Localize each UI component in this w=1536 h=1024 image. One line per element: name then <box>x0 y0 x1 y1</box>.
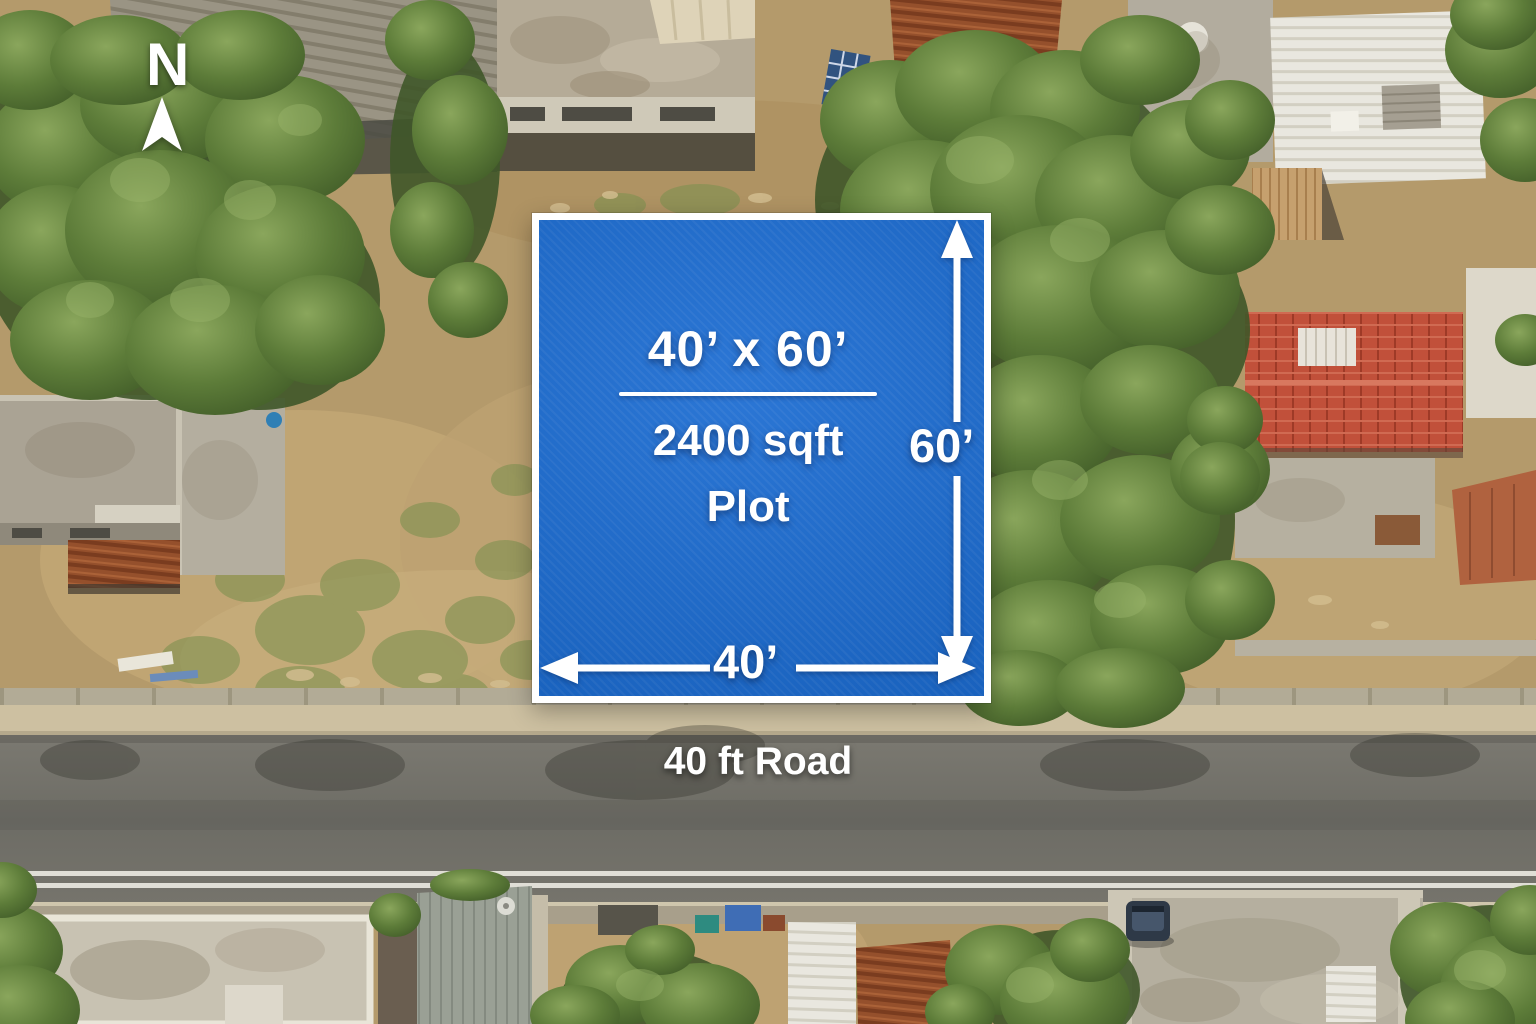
north-arrow-icon <box>142 97 182 151</box>
metal-roof-house <box>417 886 535 1024</box>
aerial-plot-view: N 40’ x 60’ 2400 sqft Plot 60’ 40’ 40 ft… <box>0 0 1536 1024</box>
parked-car <box>1122 901 1174 948</box>
red-tile-roof-house <box>1245 312 1463 458</box>
plot-caption: 40’ x 60’ 2400 sqft Plot <box>619 320 877 532</box>
concrete-roof-building <box>1108 890 1423 1024</box>
road <box>0 688 1536 924</box>
plot-type-label: Plot <box>619 482 877 532</box>
rust-awning <box>68 540 180 594</box>
road-center-line <box>0 871 1536 876</box>
road-label: 40 ft Road <box>664 740 853 784</box>
plot-frontage-label: 40’ <box>713 634 778 689</box>
plot-depth-label: 60’ <box>909 418 974 473</box>
roof-vent <box>1382 84 1442 130</box>
plot-area-label: 2400 sqft <box>619 416 877 466</box>
road-center-line <box>0 883 1536 888</box>
plot-caption-divider <box>619 392 877 396</box>
north-label: N <box>146 30 189 99</box>
plot-size-label: 40’ x 60’ <box>619 320 877 378</box>
sidewalk <box>0 705 1536 734</box>
blue-tank <box>266 412 282 428</box>
